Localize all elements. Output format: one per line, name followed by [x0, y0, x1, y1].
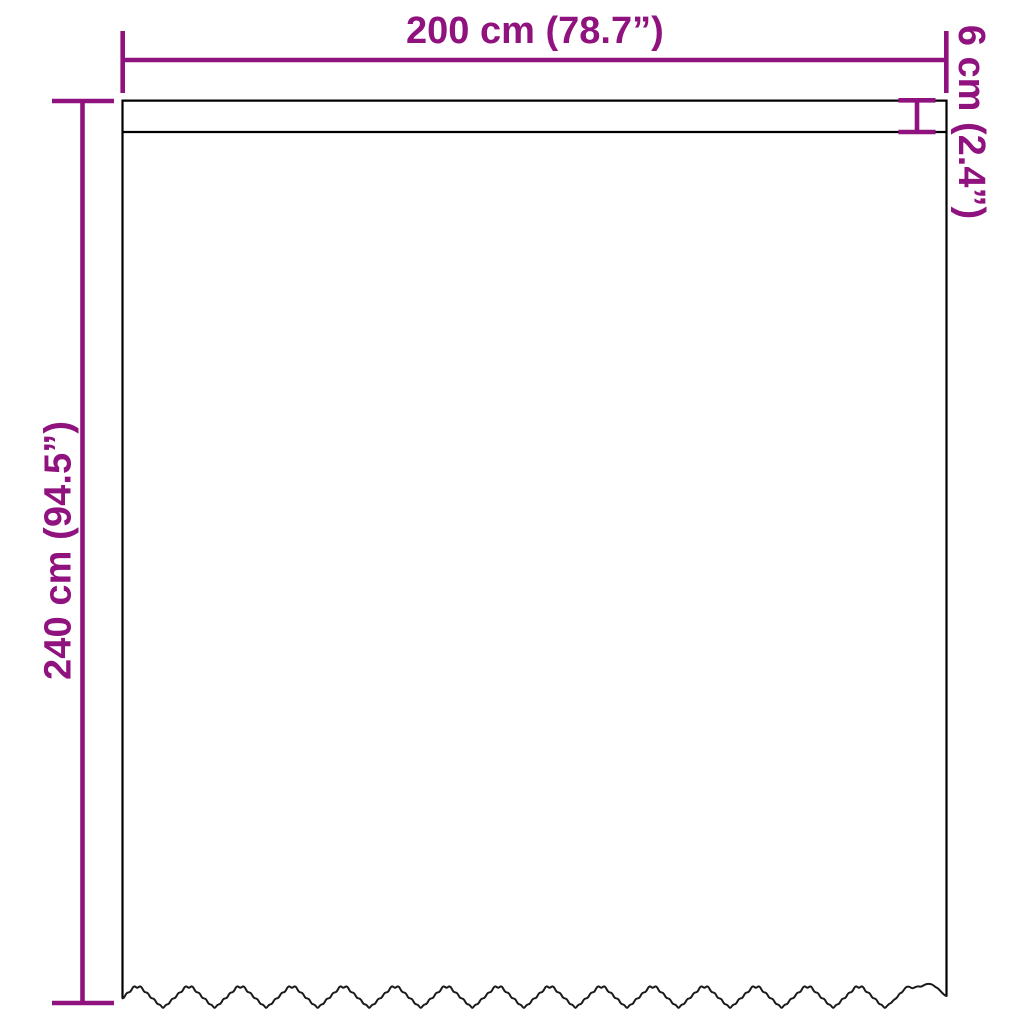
- svg-text:240 cm (94.5”): 240 cm (94.5”): [38, 421, 80, 680]
- svg-text:200 cm (78.7”): 200 cm (78.7”): [406, 10, 664, 52]
- svg-text:6 cm (2.4”): 6 cm (2.4”): [950, 25, 992, 219]
